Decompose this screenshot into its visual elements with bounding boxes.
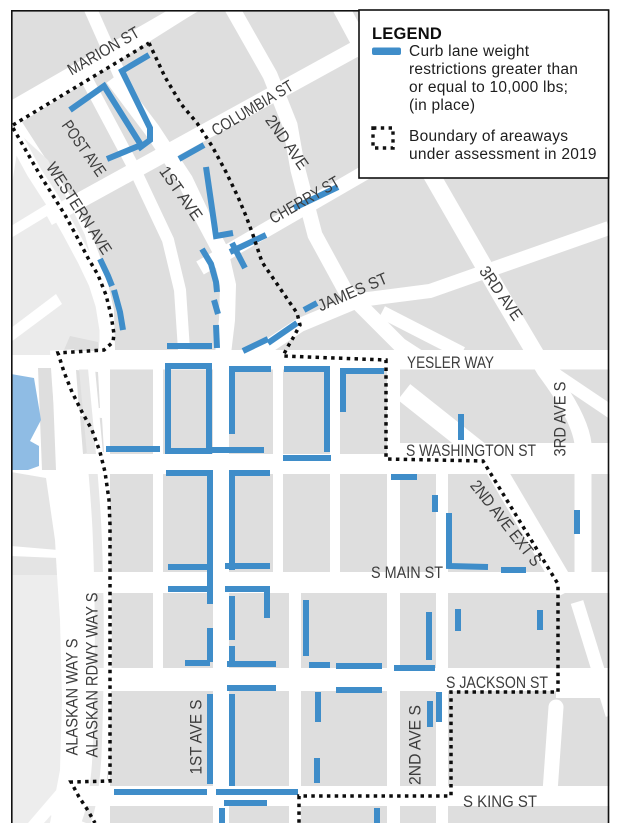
svg-text:or equal to 10,000 lbs;: or equal to 10,000 lbs;	[409, 79, 568, 96]
svg-text:S WASHINGTON ST: S WASHINGTON ST	[406, 442, 536, 460]
svg-text:ALASKAN WAY S: ALASKAN WAY S	[63, 639, 81, 756]
svg-text:S MAIN ST: S MAIN ST	[371, 564, 443, 582]
svg-text:S JACKSON ST: S JACKSON ST	[446, 674, 548, 692]
svg-text:1ST AVE S: 1ST AVE S	[187, 700, 205, 775]
svg-text:under assessment in 2019: under assessment in 2019	[409, 146, 597, 163]
svg-text:S KING ST: S KING ST	[463, 793, 537, 811]
svg-text:LEGEND: LEGEND	[372, 25, 442, 43]
svg-text:Curb lane weight: Curb lane weight	[409, 43, 530, 60]
svg-text:restrictions greater than: restrictions greater than	[409, 61, 578, 78]
svg-text:(in place): (in place)	[409, 97, 475, 114]
svg-text:ALASKAN RDWY WAY S: ALASKAN RDWY WAY S	[83, 593, 101, 758]
svg-text:2ND AVE S: 2ND AVE S	[406, 705, 424, 785]
svg-text:3RD AVE S: 3RD AVE S	[551, 382, 569, 457]
svg-text:Boundary of areaways: Boundary of areaways	[409, 128, 568, 145]
svg-text:YESLER WAY: YESLER WAY	[407, 354, 494, 372]
